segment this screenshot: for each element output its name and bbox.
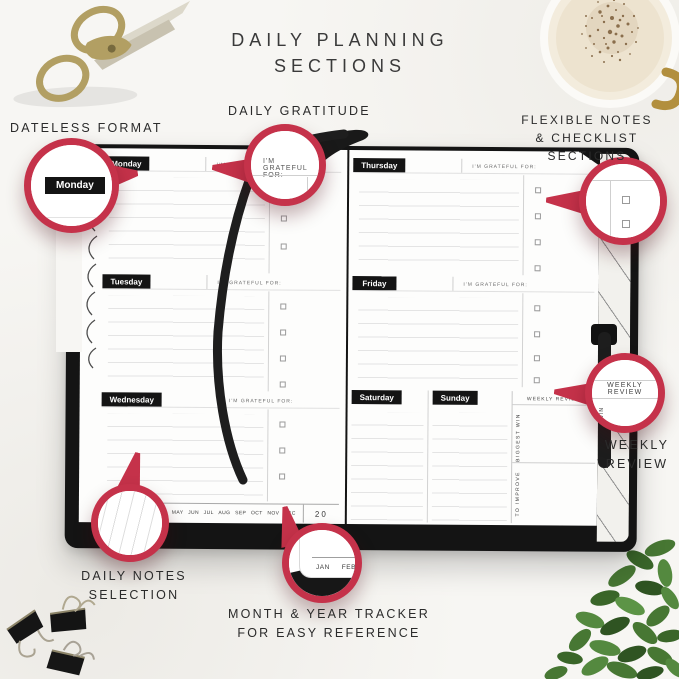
ruled-lines (358, 297, 519, 385)
monday-magnifier-content: Monday (31, 145, 112, 226)
daily-notes-line2: SELECTION (68, 586, 200, 605)
planner-left-page: Monday I'M GRATEFUL FOR: Tuesday I'M GRA… (79, 148, 348, 524)
gratitude-label: I'M GRATEFUL FOR: (206, 275, 340, 290)
month-tracker-line2: FOR EASY REFERENCE (216, 624, 442, 643)
monday-magnifier: Monday (24, 138, 119, 233)
checkbox-icon (279, 473, 285, 479)
month-tracker-magnifier: JAN FEB MAR (282, 523, 362, 603)
monday-tab-zoomed: Monday (45, 177, 105, 194)
checkbox-icon (535, 265, 541, 271)
ruled-lines (108, 295, 265, 389)
gratitude-magnifier-content: I'M GRATEFUL FOR: (251, 131, 319, 199)
year-label: 20 (315, 509, 328, 518)
checkbox-icon (281, 243, 287, 249)
daily-gratitude-label: DAILY GRATITUDE (228, 102, 371, 121)
ruled-lines (31, 201, 112, 226)
ruled-lines (98, 491, 162, 555)
month-tracker-label: MONTH & YEAR TRACKER FOR EASY REFERENCE (216, 605, 442, 643)
checkbox-icon (622, 220, 630, 228)
daily-notes-line1: DAILY NOTES (68, 567, 200, 586)
title-line1: DAILY PLANNING (150, 30, 530, 51)
checklist-column (522, 293, 595, 388)
checkbox-icon (280, 355, 286, 361)
weekly-review-column: WEEKLY REVIEW BIGGEST WIN TO IMPROVE (511, 391, 596, 524)
checkbox-icon (279, 421, 285, 427)
weekly-review-magnifier-content: WEEKLY REVIEW WIN (592, 360, 658, 426)
month-label: FEB (342, 564, 355, 571)
flexible-notes-line2: & CHECKLIST SECTIONS (494, 129, 679, 165)
weekly-review-magnifier: WEEKLY REVIEW WIN (585, 353, 665, 433)
year-box: 20 (303, 505, 339, 523)
thursday-section: Thursday I'M GRATEFUL FOR: (353, 158, 596, 278)
checkbox-icon (535, 239, 541, 245)
divider-line (592, 380, 658, 381)
friday-section: Friday I'M GRATEFUL FOR: (352, 276, 595, 390)
flexible-notes-line1: FLEXIBLE NOTES (494, 111, 679, 129)
month-label: NOV (267, 510, 279, 516)
title-line2: SECTIONS (150, 56, 530, 77)
tuesday-header: Tuesday I'M GRATEFUL FOR: (102, 274, 340, 291)
checkbox-icon (534, 377, 540, 383)
thursday-body (353, 174, 596, 276)
ruled-lines (109, 177, 266, 271)
dateless-format-label: DATELESS FORMAT (10, 119, 163, 138)
checklist-column (268, 291, 341, 392)
ruled-lines (432, 413, 508, 522)
daily-notes-magnifier (91, 484, 169, 562)
weekly-review-line1: WEEKLY (592, 436, 679, 455)
tuesday-section: Tuesday I'M GRATEFUL FOR: (102, 274, 341, 394)
gratitude-label: I'M GRATEFUL FOR: (452, 277, 594, 292)
biggest-win-partial: WIN (599, 407, 605, 420)
month-label: OCT (251, 510, 263, 516)
daily-notes-label: DAILY NOTES SELECTION (68, 567, 200, 605)
checkbox-icon (534, 355, 540, 361)
saturday-tab: Saturday (352, 390, 402, 404)
divider-line (586, 180, 660, 181)
month-label: SEP (235, 510, 246, 516)
friday-tab: Friday (352, 276, 396, 290)
tuesday-body (102, 290, 341, 392)
to-improve-box: TO IMPROVE (512, 463, 595, 522)
product-infographic: DAILY PLANNING SECTIONS Monday I'M GRATE… (0, 0, 679, 679)
sunday-section: Sunday (427, 391, 512, 524)
checkbox-icon (279, 447, 285, 453)
checklist-magnifier (579, 157, 667, 245)
checklist-magnifier-content (586, 164, 660, 238)
friday-header: Friday I'M GRATEFUL FOR: (352, 276, 594, 293)
checkbox-icon (622, 196, 630, 204)
checkbox-icon (535, 187, 541, 193)
checklist-column (267, 409, 340, 502)
page-corner: JAN FEB MAR (299, 534, 355, 578)
thursday-tab: Thursday (353, 158, 405, 172)
month-label: MAY (172, 510, 184, 516)
gratitude-magnifier: I'M GRATEFUL FOR: (244, 124, 326, 206)
weekly-review-zoomed: WEEKLY REVIEW (592, 382, 658, 396)
divider-line (251, 175, 319, 176)
ruled-lines (351, 412, 424, 521)
checkbox-icon (280, 381, 286, 387)
wednesday-tab: Wednesday (102, 392, 162, 406)
daily-notes-magnifier-content (98, 491, 162, 555)
gratitude-label: I'M GRATEFUL FOR: (218, 393, 340, 408)
divider-line (592, 398, 658, 399)
divider-line (307, 177, 308, 199)
wednesday-header: Wednesday I'M GRATEFUL FOR: (102, 392, 340, 409)
checkbox-icon (280, 329, 286, 335)
month-labels-zoomed: JAN FEB MAR (312, 557, 355, 571)
sunday-tab: Sunday (433, 391, 478, 405)
saturday-section: Saturday (347, 390, 428, 523)
friday-body (352, 292, 595, 388)
month-label: JUL (204, 510, 214, 516)
weekly-review-label: WEEKLY REVIEW (592, 436, 679, 474)
to-improve-label: TO IMPROVE (515, 471, 521, 516)
checkbox-icon (534, 305, 540, 311)
checkbox-icon (281, 216, 287, 222)
ruled-lines (359, 179, 520, 273)
checkbox-icon (534, 331, 540, 337)
coffee-cup-photo (528, 0, 679, 122)
month-label: JAN (316, 564, 330, 571)
checkbox-icon (535, 213, 541, 219)
flexible-notes-label: FLEXIBLE NOTES & CHECKLIST SECTIONS (494, 111, 679, 165)
checkbox-icon (280, 303, 286, 309)
month-tracker-line1: MONTH & YEAR TRACKER (216, 605, 442, 624)
biggest-win-label: BIGGEST WIN (515, 413, 521, 462)
month-tracker-magnifier-content: JAN FEB MAR (289, 530, 355, 596)
tuesday-tab: Tuesday (102, 274, 150, 288)
page-title: DAILY PLANNING SECTIONS (150, 30, 530, 77)
biggest-win-box: BIGGEST WIN (512, 405, 595, 464)
divider-line (610, 180, 611, 238)
month-label: AUG (218, 510, 230, 516)
weekly-review-line2: REVIEW (592, 455, 679, 474)
month-label: JUN (188, 510, 199, 516)
